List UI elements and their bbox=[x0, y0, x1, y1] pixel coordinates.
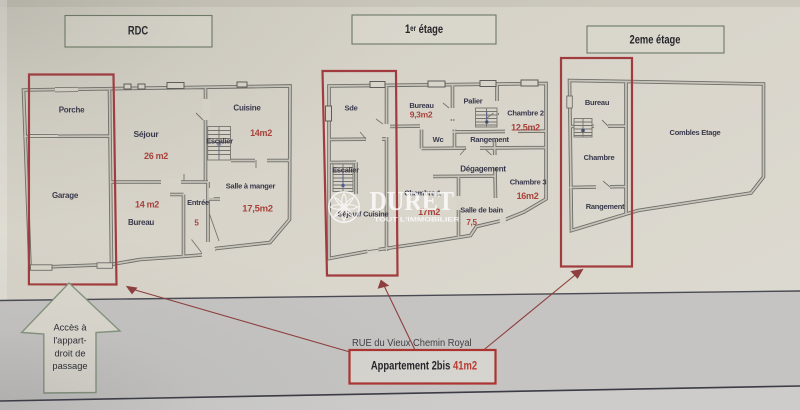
svg-text:Combles Etage: Combles Etage bbox=[670, 128, 721, 137]
svg-text:12.5m2: 12.5m2 bbox=[511, 123, 540, 133]
svg-text:Rangement: Rangement bbox=[470, 135, 509, 144]
svg-text:16m2: 16m2 bbox=[517, 191, 539, 201]
svg-text:Dégagement: Dégagement bbox=[460, 165, 506, 174]
svg-text:Wc: Wc bbox=[433, 135, 444, 144]
svg-text:7,5: 7,5 bbox=[466, 218, 477, 227]
svg-text:Chambre: Chambre bbox=[584, 153, 615, 162]
svg-text:Chambre 3: Chambre 3 bbox=[510, 178, 547, 187]
svg-text:Palier: Palier bbox=[464, 97, 483, 106]
svg-text:Salle de bain: Salle de bain bbox=[460, 206, 503, 215]
svg-text:Chambre 2: Chambre 2 bbox=[507, 109, 544, 118]
svg-text:Rangement: Rangement bbox=[586, 202, 625, 211]
svg-text:Bureau: Bureau bbox=[585, 98, 610, 107]
svg-text:2eme étage: 2eme étage bbox=[630, 33, 681, 46]
